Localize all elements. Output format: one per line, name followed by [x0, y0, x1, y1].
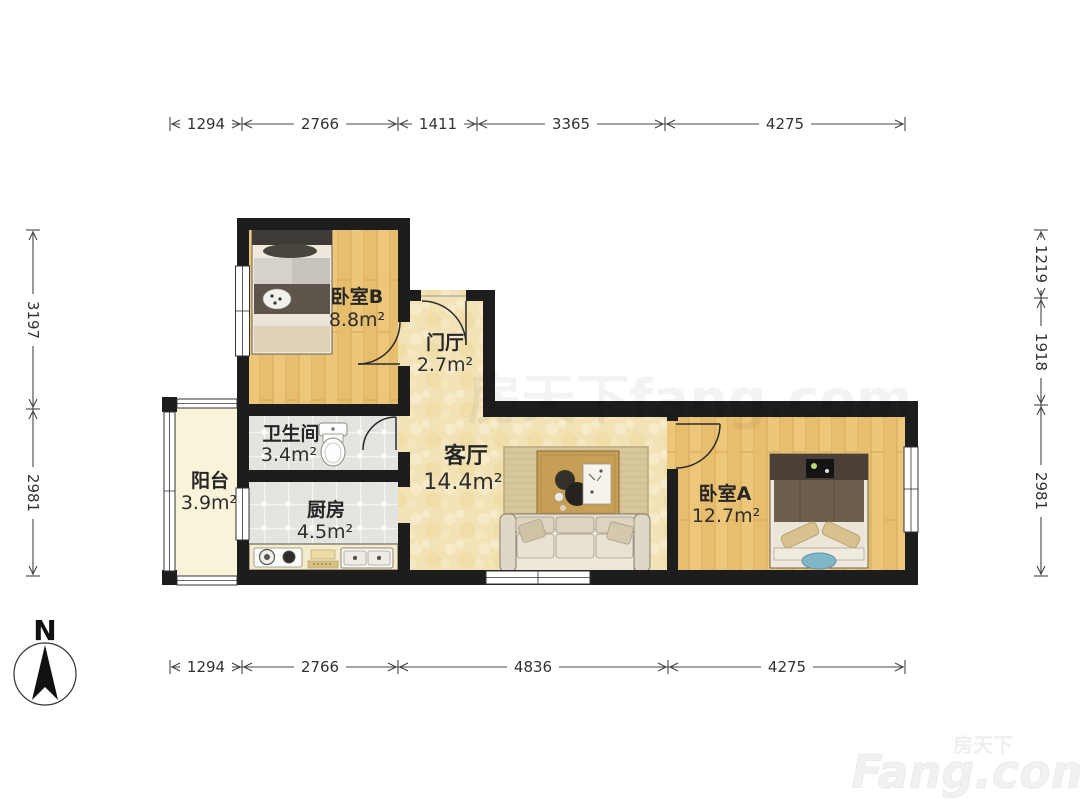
- toilet-icon: [319, 423, 347, 466]
- dimension-label: 1219: [1032, 245, 1050, 283]
- dimension-label: 1918: [1032, 333, 1050, 371]
- room-label: 卧室A: [699, 482, 752, 505]
- bed-icon: [770, 454, 868, 569]
- north-label: N: [33, 614, 56, 647]
- coffee-table-icon: [537, 451, 619, 517]
- dimension-label: 4836: [514, 658, 552, 676]
- room-area: 12.7m²: [692, 505, 760, 527]
- stool-icon: [802, 553, 836, 569]
- dimension-label: 4275: [768, 658, 806, 676]
- bed-icon: [252, 230, 332, 354]
- window: [177, 576, 237, 585]
- stove-icon: [254, 548, 302, 567]
- room-label: 阳台: [191, 469, 229, 492]
- room-label: 卧室B: [331, 285, 383, 308]
- dimension-label: 1294: [187, 115, 225, 133]
- dimension-label: 3365: [552, 115, 590, 133]
- dimension-label: 2766: [301, 658, 339, 676]
- room-label: 客厅: [444, 443, 488, 469]
- room-area: 4.5m²: [297, 521, 353, 543]
- window: [164, 412, 175, 571]
- dimension-label: 1294: [187, 658, 225, 676]
- dimension-label: 3197: [24, 301, 42, 339]
- sink-icon: [341, 548, 393, 568]
- room-area: 3.4m²: [261, 444, 317, 466]
- room-area: 2.7m²: [417, 354, 473, 376]
- sofa-icon: [500, 514, 650, 572]
- dimension-label: 2981: [24, 474, 42, 512]
- room-area: 8.8m²: [329, 309, 385, 331]
- room-area: 14.4m²: [423, 470, 502, 495]
- room-label: 厨房: [307, 498, 345, 521]
- small-appliance-icon: [308, 550, 338, 568]
- corner-watermark-en: Fang.com: [851, 745, 1080, 799]
- dimension-label: 2766: [301, 115, 339, 133]
- floorplan-page: 卧室B 8.8m² 门厅 2.7m² 卫生间 3.4m² 阳台 3.9m² 厨房…: [0, 0, 1080, 800]
- room-label: 门厅: [426, 331, 464, 354]
- floor-plan: 卧室B 8.8m² 门厅 2.7m² 卫生间 3.4m² 阳台 3.9m² 厨房…: [0, 0, 1080, 800]
- kitchen-counter: [249, 544, 398, 570]
- window: [486, 571, 590, 584]
- window: [904, 447, 918, 532]
- dimension-label: 4275: [766, 115, 804, 133]
- window: [177, 399, 237, 408]
- center-watermark: 房天下fang.com: [468, 368, 913, 431]
- dimension-label: 2981: [1032, 472, 1050, 510]
- room-label: 卫生间: [262, 422, 319, 445]
- dimension-label: 1411: [419, 115, 457, 133]
- room-area: 3.9m²: [181, 492, 237, 514]
- window: [236, 266, 250, 356]
- window: [236, 488, 249, 540]
